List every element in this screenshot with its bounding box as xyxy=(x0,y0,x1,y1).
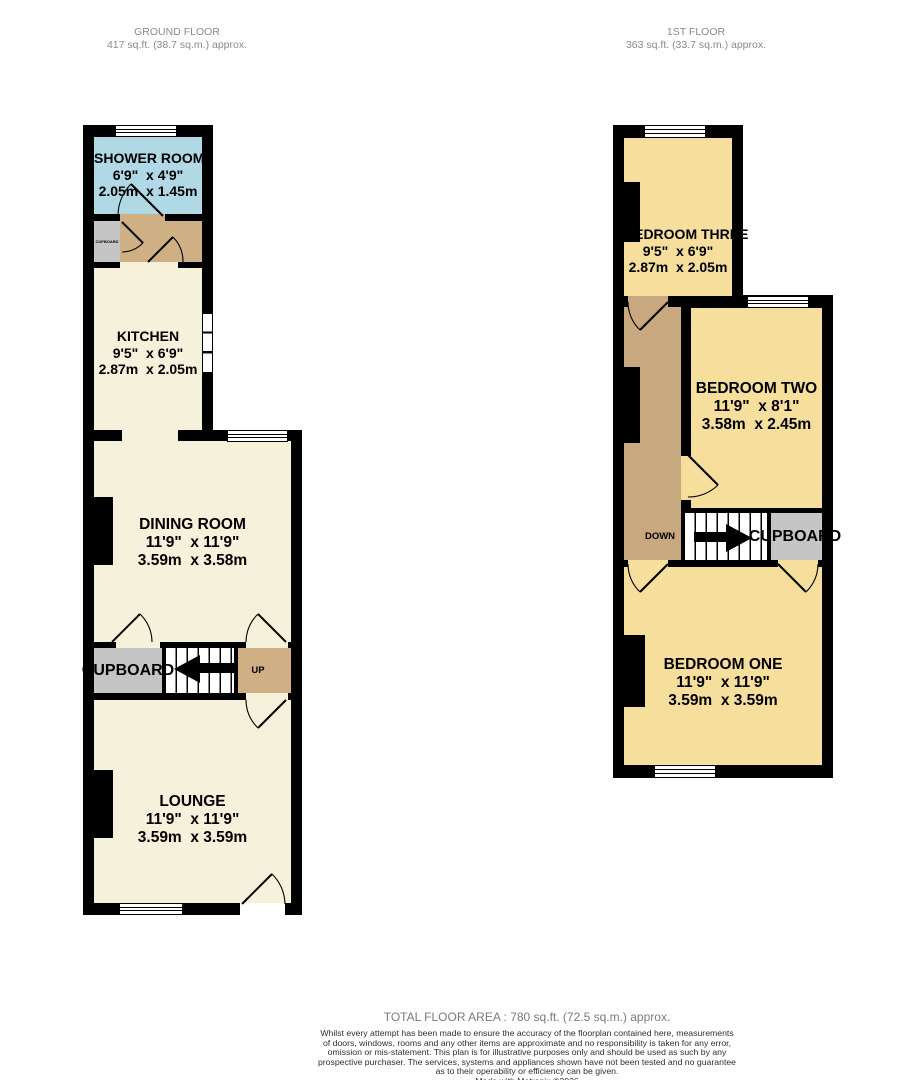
bedroom-two-door-opening xyxy=(681,456,691,500)
cupboard-door-opening xyxy=(778,560,818,567)
total-floor-area: TOTAL FLOOR AREA : 780 sq.ft. (72.5 sq.m… xyxy=(287,1010,767,1024)
stairs-cupboard-ground-label: CUPBOARD xyxy=(86,648,170,693)
footer: TOTAL FLOOR AREA : 780 sq.ft. (72.5 sq.m… xyxy=(287,1010,767,1080)
kitchen-label: KITCHEN 9'5" x 6'9" 2.87m x 2.05m xyxy=(94,328,202,378)
ground-floor-title: GROUND FLOOR xyxy=(47,26,307,39)
disclaimer-text: Whilst every attempt has been made to en… xyxy=(287,1029,767,1077)
hallway-cupboard-label: CUPBOARD xyxy=(94,221,120,262)
kitchen-dining-opening xyxy=(122,430,178,441)
floorplan-page: GROUND FLOOR 417 sq.ft. (38.7 sq.m.) app… xyxy=(0,0,916,1080)
dining-room-window xyxy=(227,430,288,442)
ground-floor-area: 417 sq.ft. (38.7 sq.m.) approx. xyxy=(47,39,307,52)
down-label: DOWN xyxy=(640,513,680,560)
first-floor-title: 1ST FLOOR xyxy=(566,26,826,39)
chimney-breast-landing xyxy=(624,367,640,443)
shower-door-opening xyxy=(120,214,165,221)
shower-room-label: SHOWER ROOM 6'9" x 4'9" 2.05m x 1.45m xyxy=(94,150,202,200)
front-door-opening xyxy=(240,903,285,915)
bedroom-one-window xyxy=(654,765,716,778)
bedroom-three-label: BEDROOM THREE 9'5" x 6'9" 2.87m x 2.05m xyxy=(624,226,732,276)
lounge-label: LOUNGE 11'9" x 11'9" 3.59m x 3.59m xyxy=(94,793,291,847)
up-label: UP xyxy=(238,648,278,693)
bedroom-one-door-opening xyxy=(628,560,668,567)
shower-room-window xyxy=(115,125,177,137)
dining-room-label: DINING ROOM 11'9" x 11'9" 3.59m x 3.58m xyxy=(94,516,291,570)
ground-floor-header: GROUND FLOOR 417 sq.ft. (38.7 sq.m.) app… xyxy=(47,26,307,52)
bedroom-two-window xyxy=(747,296,809,308)
first-floor-header: 1ST FLOOR 363 sq.ft. (33.7 sq.m.) approx… xyxy=(566,26,826,52)
lounge-door-opening xyxy=(246,693,288,700)
kitchen-window xyxy=(202,313,213,373)
bedroom-three-door-opening xyxy=(628,296,668,307)
lounge-window xyxy=(119,903,183,915)
stairs-cupboard-first-label: CUPBOARD xyxy=(745,513,845,560)
bedroom-one-label: BEDROOM ONE 11'9" x 11'9" 3.59m x 3.59m xyxy=(624,656,822,710)
bedroom-three-window xyxy=(644,125,706,138)
bedroom-two-label: BEDROOM TWO 11'9" x 8'1" 3.58m x 2.45m xyxy=(691,380,822,434)
first-floor-area: 363 sq.ft. (33.7 sq.m.) approx. xyxy=(566,39,826,52)
kitchen-door-opening xyxy=(120,262,178,268)
